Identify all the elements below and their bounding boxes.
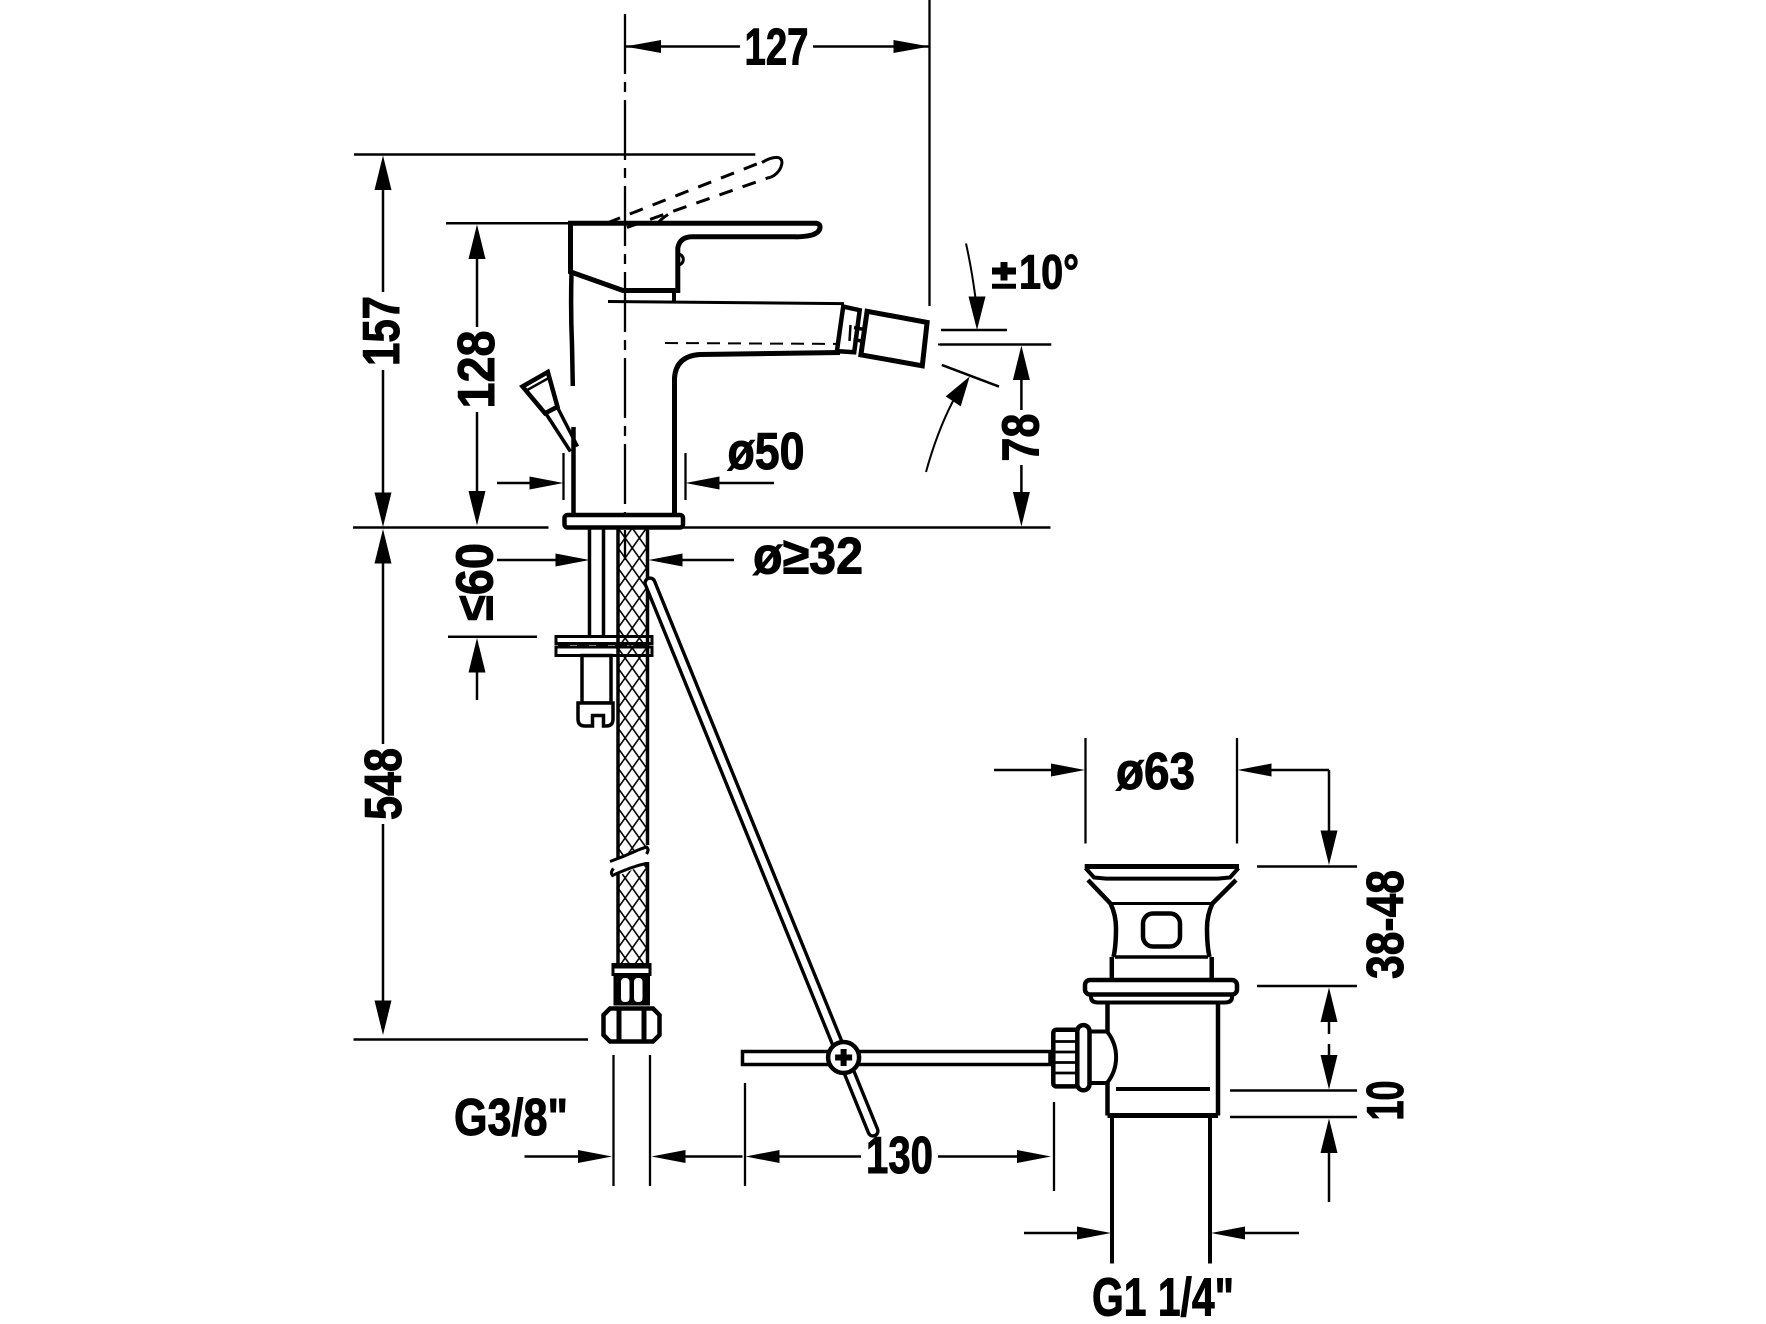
svg-text:≤60: ≤60 bbox=[446, 543, 504, 621]
svg-text:78: 78 bbox=[992, 414, 1050, 462]
svg-text:38-48: 38-48 bbox=[1357, 870, 1415, 979]
svg-text:128: 128 bbox=[448, 331, 506, 409]
svg-text:ø63: ø63 bbox=[1116, 743, 1195, 801]
svg-text:10°: 10° bbox=[1019, 247, 1079, 300]
svg-text:ø≥32: ø≥32 bbox=[753, 528, 863, 586]
svg-text:157: 157 bbox=[353, 296, 411, 366]
svg-text:G3/8": G3/8" bbox=[454, 1089, 568, 1147]
svg-text:127: 127 bbox=[745, 19, 809, 77]
svg-text:G1 1/4": G1 1/4" bbox=[1092, 1268, 1234, 1324]
svg-text:548: 548 bbox=[355, 748, 413, 820]
svg-text:ø50: ø50 bbox=[728, 423, 805, 481]
svg-text:10: 10 bbox=[1357, 1081, 1415, 1121]
